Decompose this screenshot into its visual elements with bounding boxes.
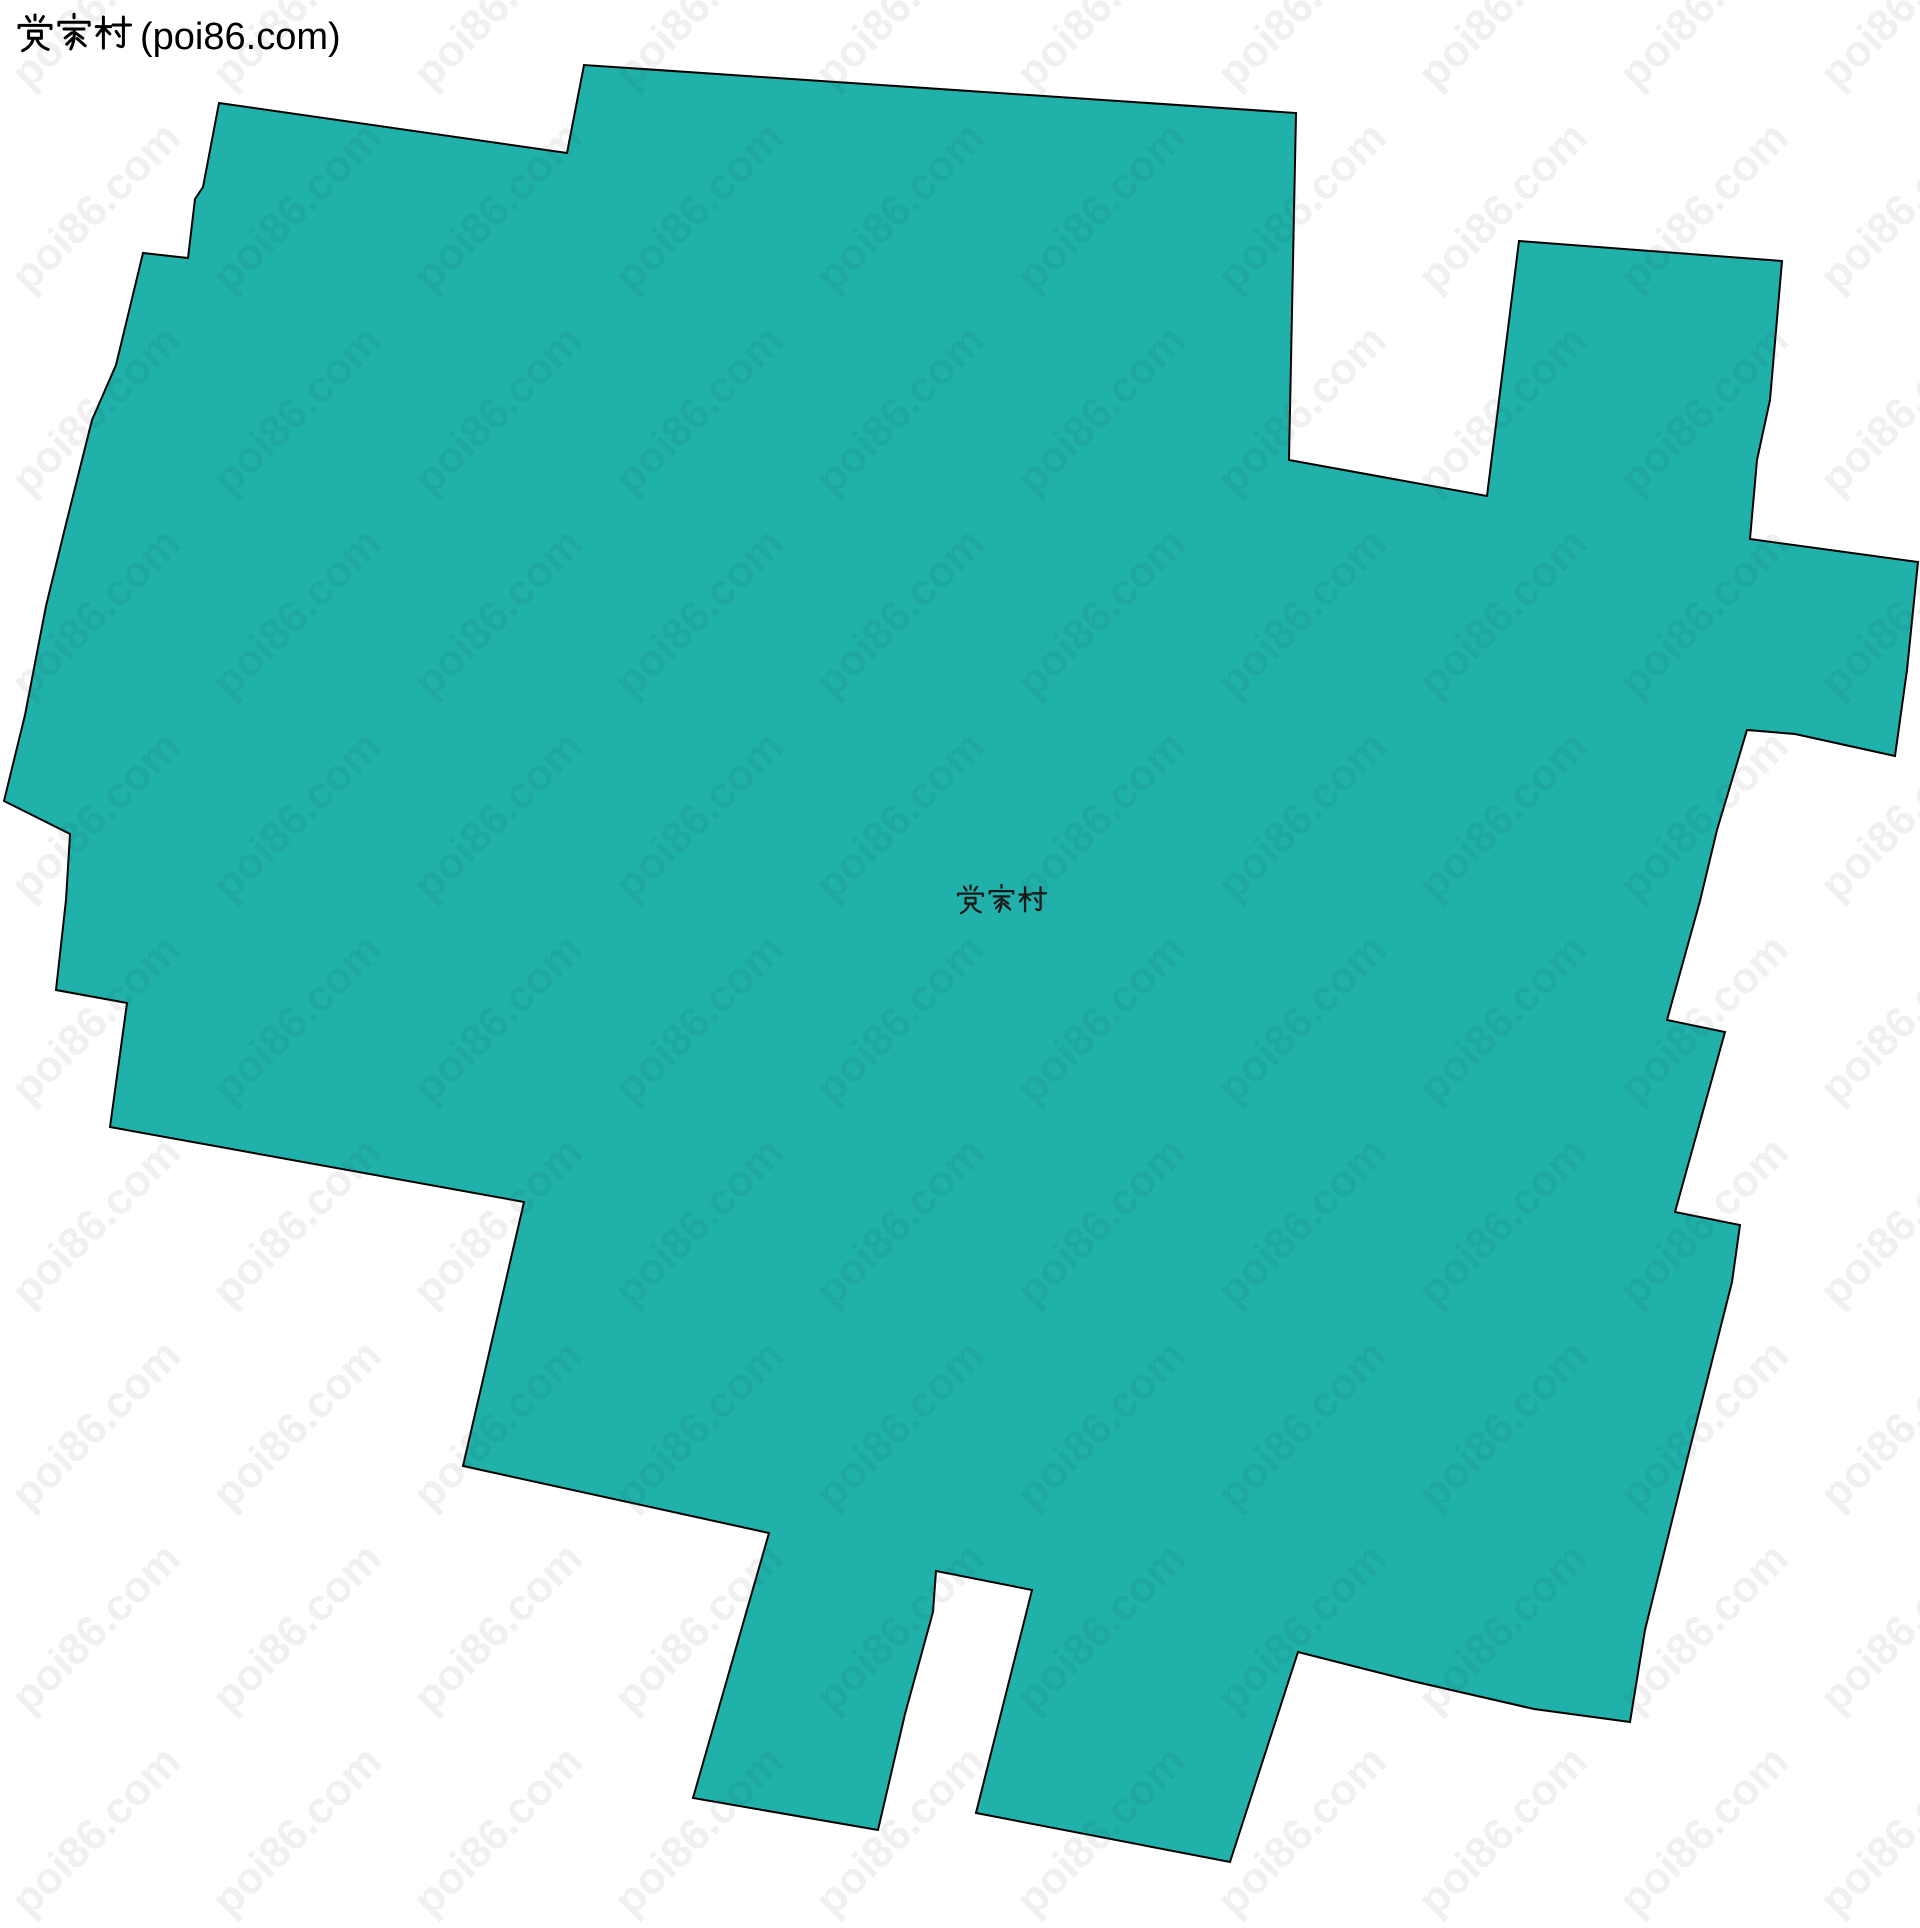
svg-text:(poi86.com): (poi86.com) [140,16,341,58]
